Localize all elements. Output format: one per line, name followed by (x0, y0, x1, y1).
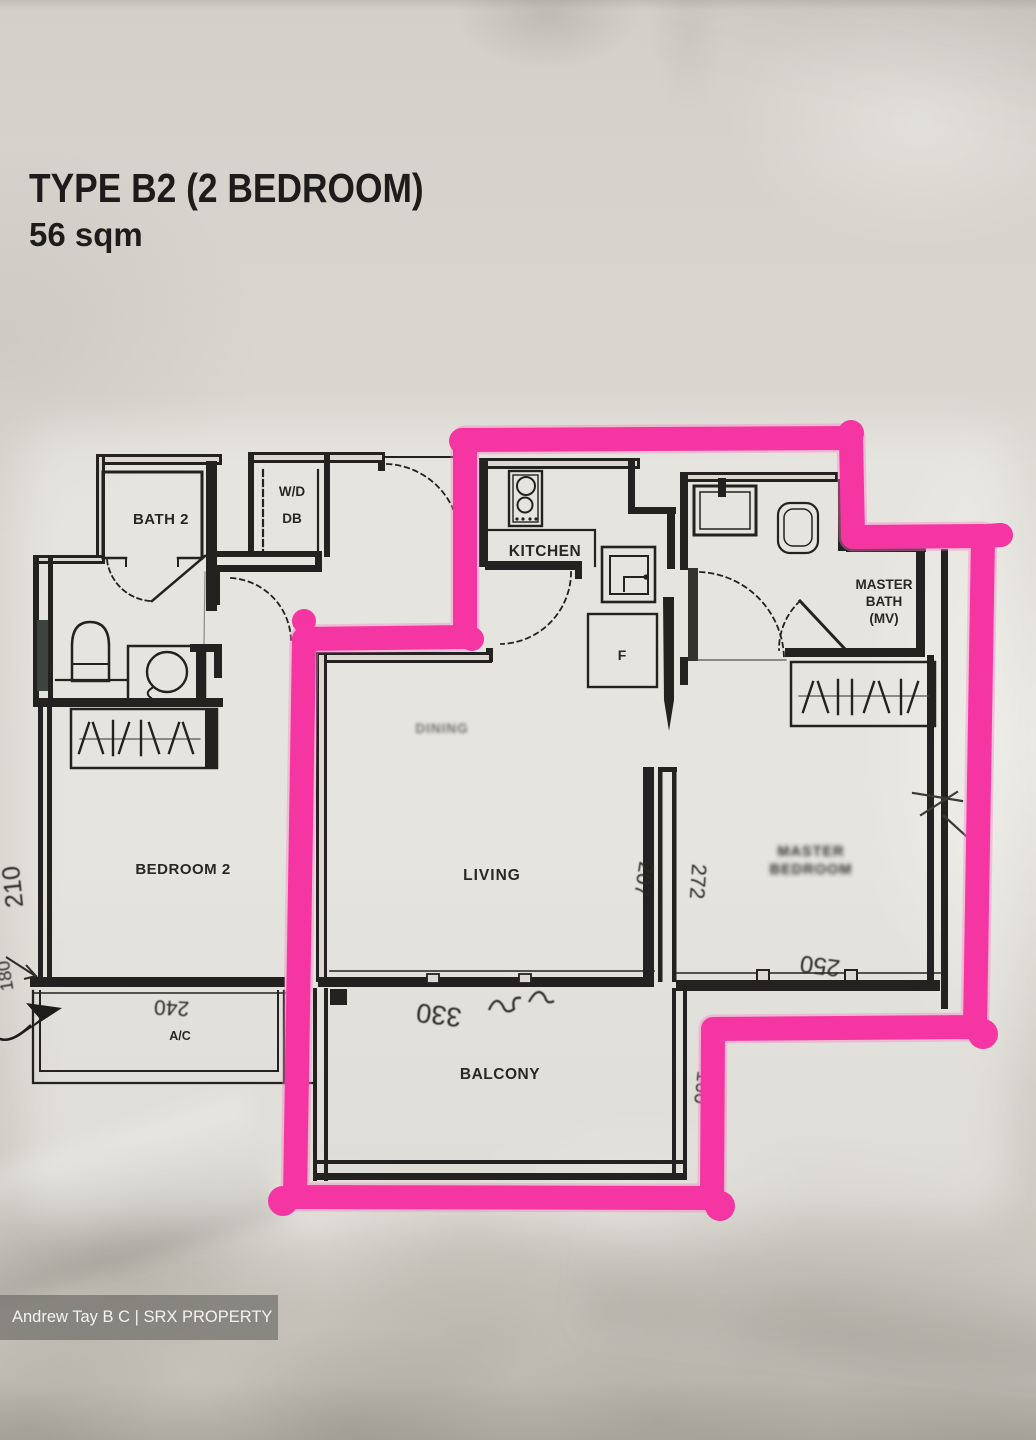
svg-text:250: 250 (799, 950, 842, 982)
svg-text:F: F (618, 647, 627, 663)
svg-text:DB: DB (282, 511, 302, 526)
svg-text:W/D: W/D (279, 484, 305, 499)
svg-text:272: 272 (685, 863, 710, 900)
svg-text:240: 240 (154, 995, 190, 1020)
svg-text:KITCHEN: KITCHEN (509, 543, 581, 560)
svg-text:BALCONY: BALCONY (460, 1066, 540, 1083)
svg-text:(MV): (MV) (869, 611, 898, 626)
svg-text:A/C: A/C (169, 1029, 191, 1043)
svg-text:BEDROOM: BEDROOM (770, 862, 853, 878)
svg-text:BEDROOM 2: BEDROOM 2 (135, 861, 230, 878)
svg-text:330: 330 (415, 997, 463, 1032)
svg-text:180: 180 (0, 960, 17, 993)
svg-text:MASTER: MASTER (777, 844, 844, 860)
svg-text:LIVING: LIVING (463, 867, 521, 884)
svg-text:DINING: DINING (415, 721, 468, 736)
svg-text:BATH 2: BATH 2 (133, 511, 189, 528)
svg-text:BATH: BATH (866, 594, 903, 609)
svg-text:207: 207 (629, 860, 657, 898)
svg-text:MASTER: MASTER (856, 577, 913, 592)
svg-text:210: 210 (0, 865, 29, 909)
